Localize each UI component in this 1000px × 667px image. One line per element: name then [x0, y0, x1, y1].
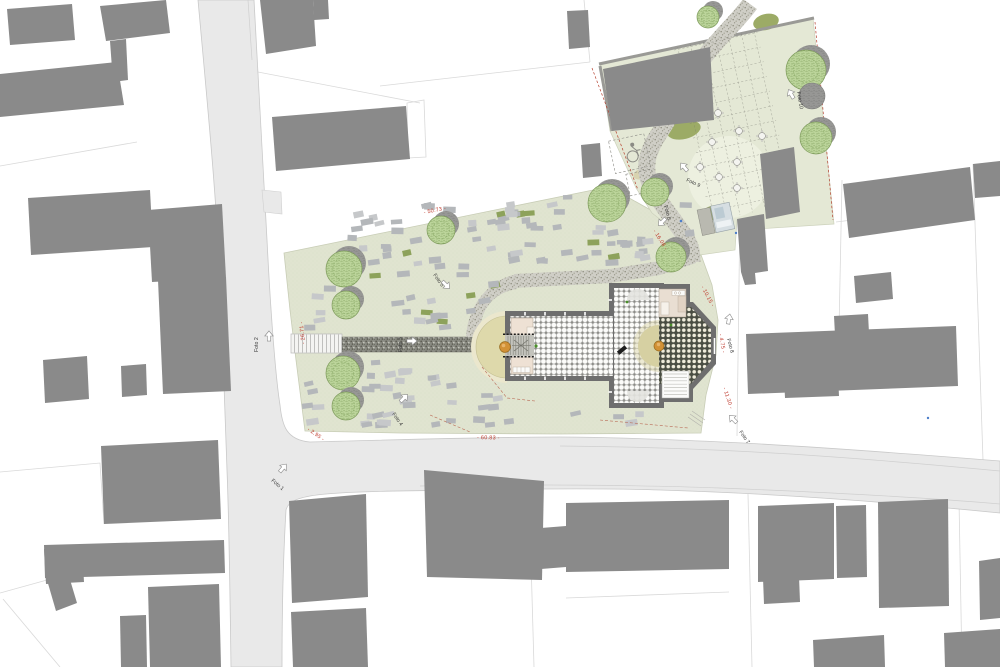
svg-text:Foto 3: Foto 3 — [398, 337, 404, 352]
svg-text:Foto 2: Foto 2 — [254, 337, 260, 352]
svg-text:- 60.83 -: - 60.83 - — [477, 435, 500, 441]
